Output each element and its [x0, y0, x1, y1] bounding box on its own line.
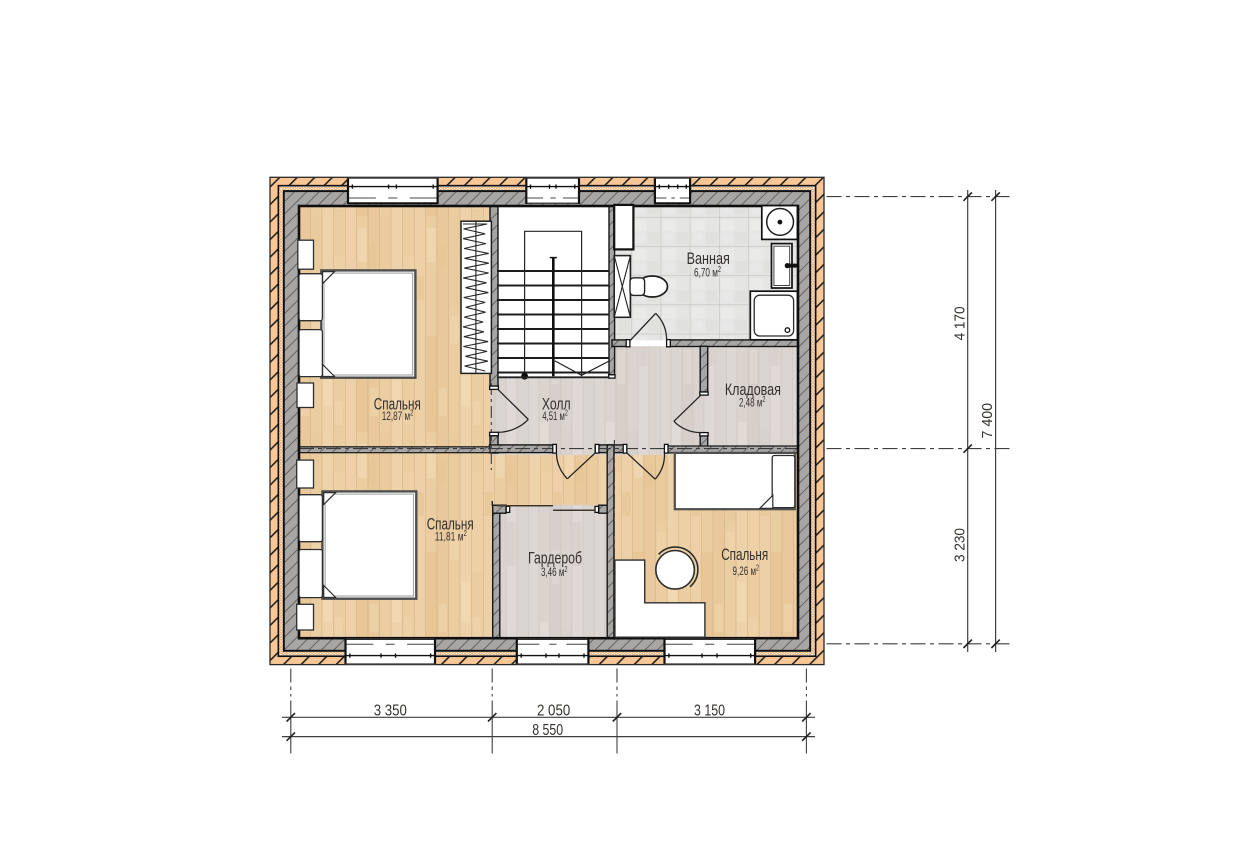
svg-text:2 050: 2 050 [537, 703, 570, 720]
svg-text:Ванная: Ванная [687, 250, 730, 268]
svg-text:6,70 м2: 6,70 м2 [694, 265, 721, 279]
svg-text:9,26 м2: 9,26 м2 [733, 563, 760, 577]
svg-text:3 350: 3 350 [374, 703, 407, 720]
svg-text:3,46 м2: 3,46 м2 [541, 565, 568, 579]
svg-text:4,51 м2: 4,51 м2 [542, 408, 568, 422]
svg-text:3 230: 3 230 [951, 528, 968, 562]
svg-text:Спальня: Спальня [721, 546, 768, 564]
svg-text:2,48 м2: 2,48 м2 [739, 395, 766, 409]
svg-text:Гардероб: Гардероб [528, 549, 582, 567]
svg-text:7 400: 7 400 [979, 403, 996, 439]
svg-text:4 170: 4 170 [951, 306, 968, 340]
svg-text:3 150: 3 150 [694, 703, 725, 720]
svg-text:12,87 м2: 12,87 м2 [382, 409, 414, 423]
svg-text:8 550: 8 550 [532, 722, 563, 739]
svg-text:11,81 м2: 11,81 м2 [435, 529, 467, 543]
